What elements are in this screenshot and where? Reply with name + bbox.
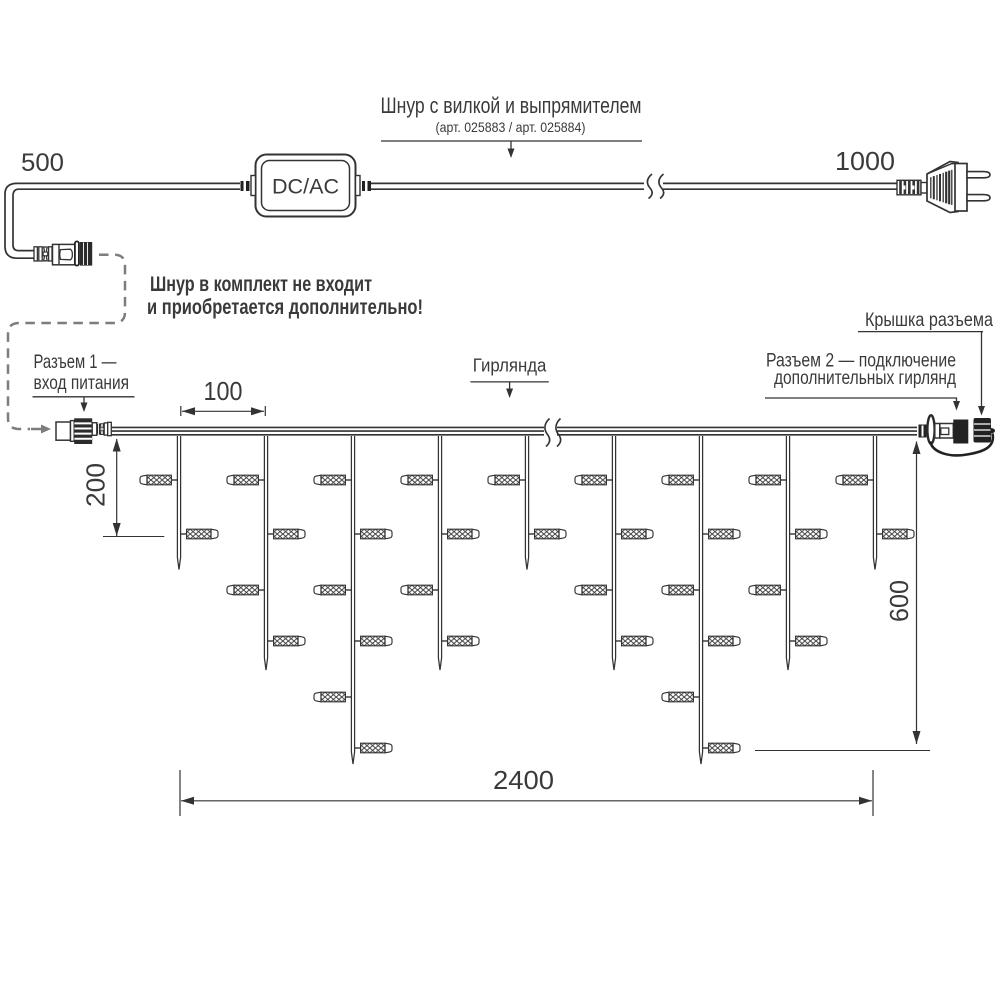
svg-text:Разъем 1 —: Разъем 1 — [34, 351, 117, 373]
svg-text:2400: 2400 [493, 765, 554, 795]
svg-text:DC/AC: DC/AC [272, 175, 339, 199]
svg-text:600: 600 [884, 580, 914, 622]
svg-text:100: 100 [204, 376, 243, 406]
svg-text:200: 200 [81, 463, 111, 507]
svg-text:Крышка разъема: Крышка разъема [865, 309, 993, 331]
svg-text:1000: 1000 [835, 146, 895, 176]
svg-text:Шнур в комплект не входит: Шнур в комплект не входит [150, 273, 372, 296]
svg-text:Шнур с вилкой и выпрямителем: Шнур с вилкой и выпрямителем [381, 93, 642, 118]
svg-text:и приобретается дополнительно!: и приобретается дополнительно! [147, 296, 423, 319]
svg-text:(арт. 025883 / арт. 025884): (арт. 025883 / арт. 025884) [436, 119, 586, 135]
svg-text:дополнительных гирлянд: дополнительных гирлянд [774, 367, 956, 389]
svg-text:500: 500 [21, 149, 64, 177]
svg-text:вход питания: вход питания [34, 372, 130, 394]
svg-text:Гирлянда: Гирлянда [473, 355, 547, 376]
